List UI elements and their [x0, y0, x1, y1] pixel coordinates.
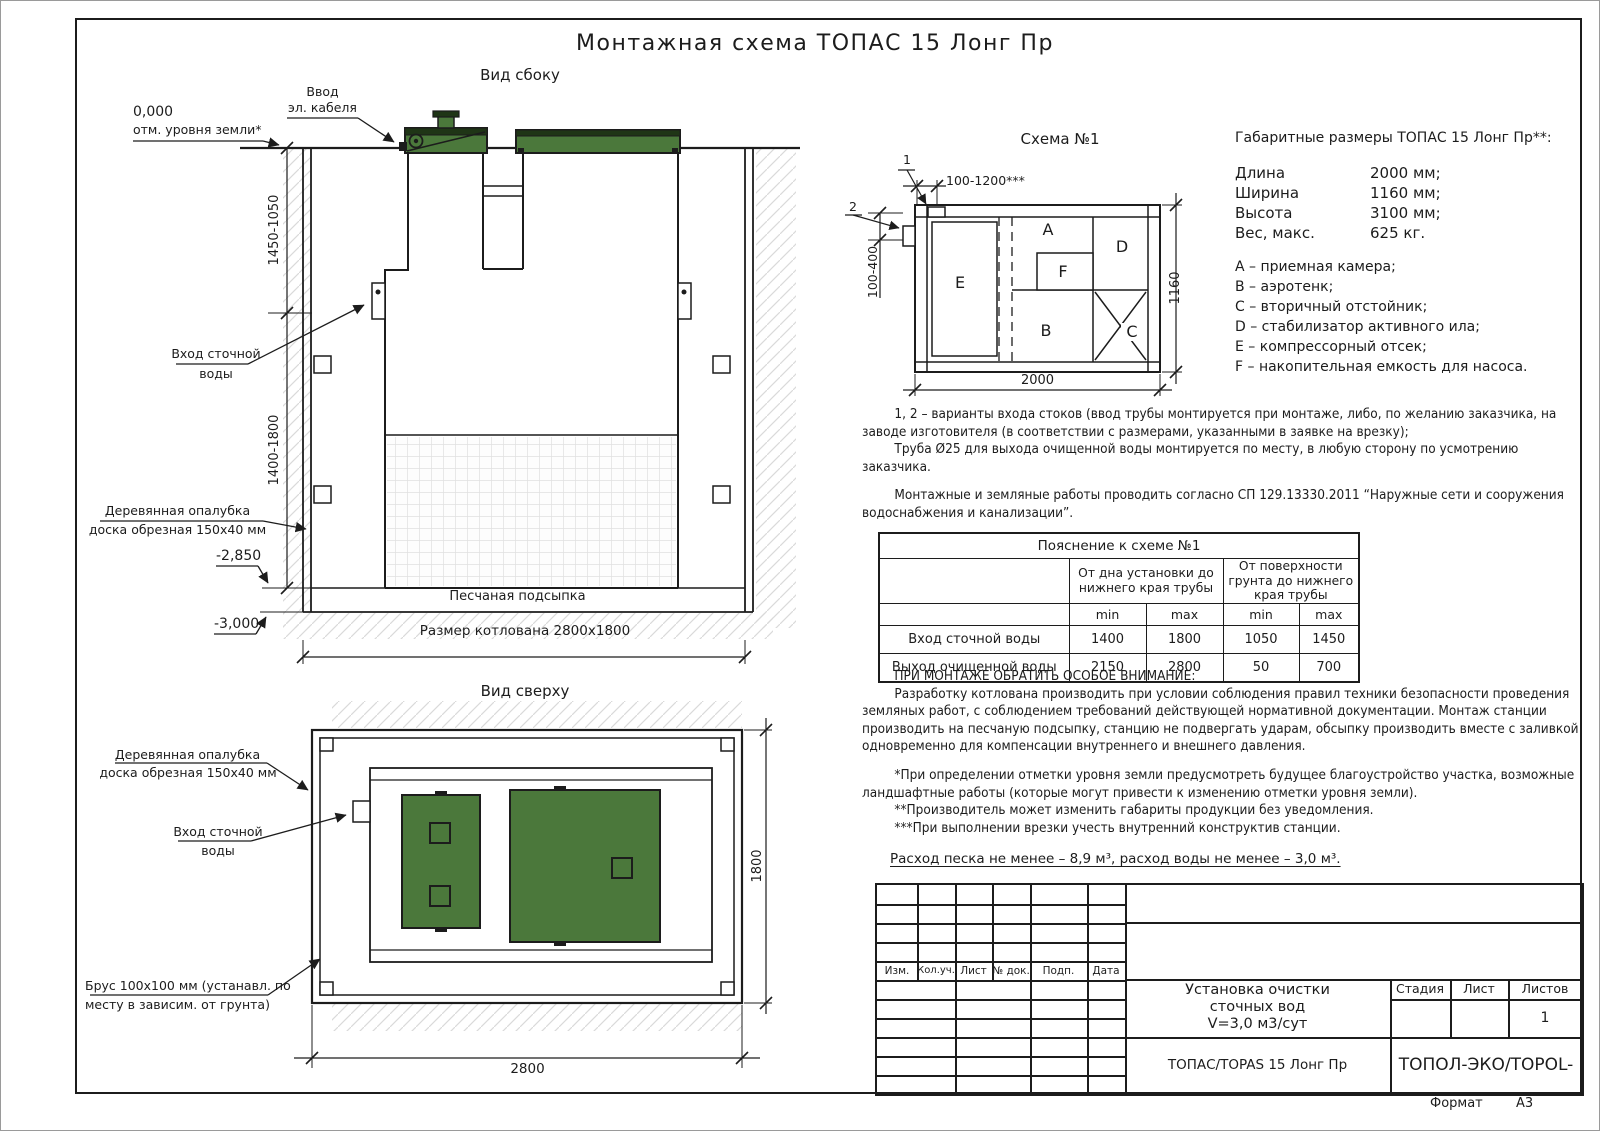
attention-heading: ПРИ МОНТАЖЕ ОБРАТИТЬ ОСОБОЕ ВНИМАНИЕ: [862, 668, 1582, 686]
company-name: ТОПОЛ-ЭКО/TOPOL-ECO [1390, 1037, 1582, 1094]
table-corner-cell [879, 559, 1069, 604]
pit-size-label: Размер котлована 2800х1800 [355, 623, 695, 639]
dim-pit-1800: 1800 [750, 821, 766, 911]
attention-block: ПРИ МОНТАЖЕ ОБРАТИТЬ ОСОБОЕ ВНИМАНИЕ: Ра… [862, 668, 1582, 837]
consumption-note: Расход песка не менее – 8,9 м³, расход в… [890, 851, 1341, 867]
rev-col-list: Лист [955, 962, 992, 980]
elevation-mark-3000: -3,000 [214, 616, 259, 632]
doc-title-line: сточных вод [1125, 999, 1390, 1016]
cable-entry-point [399, 142, 407, 151]
sand-bedding-label: Песчаная подсыпка [390, 589, 645, 604]
inlet-variant-2 [903, 226, 915, 246]
compartment-f: F [1052, 263, 1074, 281]
cable-entry-label: эл. кабеля [270, 100, 375, 115]
inlet-label: воды [166, 366, 266, 381]
inlet-label: Вход сточной [166, 346, 266, 361]
compartment-a: A [1037, 221, 1059, 239]
outlet-stub [678, 283, 691, 319]
beam-label: месту в зависим. от грунта) [85, 997, 265, 1012]
model-name: ТОПАС/TOPAS 15 Лонг Пр [1125, 1037, 1390, 1094]
dim-row-label: Высота [1235, 204, 1293, 222]
formwork-label: доска обрезная 150х40 мм [80, 522, 275, 537]
lid-small-plan [402, 791, 480, 932]
footnote-2: **Производитель может изменить габариты … [862, 802, 1582, 820]
note-inlet-variants: 1, 2 – варианты входа стоков (ввод трубы… [862, 406, 1582, 441]
tank-texture [387, 437, 676, 586]
dim-depth-upper: 1450-1050 [267, 175, 283, 285]
lid-small [399, 111, 487, 153]
schema-caption: Схема №1 [990, 130, 1130, 148]
table-row: Вход сточной воды 1400 1800 1050 1450 [879, 625, 1359, 653]
topview-hatch-top [332, 701, 742, 728]
dim-depth-lower: 1400-1800 [267, 395, 283, 505]
sheets-header: Листов [1508, 979, 1582, 999]
topview-hatch-bottom [332, 1004, 742, 1031]
inlet-plan-label: воды [168, 843, 268, 858]
rev-col-data: Дата [1087, 962, 1125, 980]
lid-large-plan [510, 786, 660, 946]
sheets-count: 1 [1508, 999, 1582, 1037]
cable-leader [358, 118, 394, 142]
dim-row-value: 1160 мм; [1370, 184, 1441, 202]
formwork-plan-label: Деревянная опалубка [100, 747, 275, 762]
drawing-sheet: Монтажная схема ТОПАС 15 Лонг Пр Вид сбо… [0, 0, 1600, 1131]
vent-cap [433, 111, 459, 117]
schema-dashed-walls [999, 217, 1012, 362]
rev-col-ndok: № док. [992, 962, 1030, 980]
rev-col-koluch: Кол.уч. [917, 962, 955, 980]
min-header: min [1223, 603, 1299, 625]
schema-dim-ticks [874, 180, 1182, 396]
notes-block: 1, 2 – варианты входа стоков (ввод трубы… [862, 406, 1582, 523]
brace [314, 356, 331, 373]
explanation-table: Пояснение к схеме №1 От дна установки до… [878, 532, 1360, 683]
cell-value: 1400 [1069, 625, 1146, 653]
inlet-point-1: 1 [903, 152, 911, 167]
doc-title-line: V=3,0 м3/сут [1125, 1016, 1390, 1033]
legend-item: F – накопительная емкость для насоса. [1235, 359, 1528, 375]
overall-dims-heading: Габаритные размеры ТОПАС 15 Лонг Пр**: [1235, 130, 1552, 146]
note-outlet-pipe: Труба Ø25 для выхода очищенной воды монт… [862, 441, 1582, 476]
row-label: Вход сточной воды [879, 625, 1069, 653]
legend-item: B – аэротенк; [1235, 279, 1333, 295]
legend-item: A – приемная камера; [1235, 259, 1396, 275]
title-block: Изм. Кол.уч. Лист № док. Подп. Дата Уста… [875, 883, 1584, 1096]
dim-row-label: Вес, макс. [1235, 224, 1315, 242]
inlet-variant-1 [928, 207, 945, 217]
dim-row-value: 2000 мм; [1370, 164, 1441, 182]
inlet-plan-label: Вход сточной [168, 824, 268, 839]
dim-row-label: Длина [1235, 164, 1285, 182]
table-group-header: От дна установки до нижнего края трубы [1069, 559, 1223, 604]
legend-item: D – стабилизатор активного ила; [1235, 319, 1480, 335]
cell-value: 1050 [1223, 625, 1299, 653]
table-group-header: От поверхности грунта до нижнего края тр… [1223, 559, 1359, 604]
compartment-c: C [1121, 323, 1143, 341]
inlet-stub [372, 283, 385, 319]
dim-row-label: Ширина [1235, 184, 1299, 202]
side-view-drawing [100, 111, 800, 664]
dim-inlet-offset: 100-1200*** [946, 173, 1025, 188]
dim-row-value: 625 кг. [1370, 224, 1425, 242]
cell-value: 1800 [1146, 625, 1223, 653]
doc-title: Установка очистки сточных вод V=3,0 м3/с… [1125, 982, 1390, 1037]
max-header: max [1299, 603, 1359, 625]
schema-drawing [845, 170, 1182, 396]
rev-col-izm: Изм. [877, 962, 917, 980]
elevation-mark-2850: -2,850 [216, 548, 261, 564]
zero-leader [263, 141, 279, 145]
beam-label: Брус 100х100 мм (устанавл. по [85, 978, 275, 993]
sheet-title: Монтажная схема ТОПАС 15 Лонг Пр [490, 31, 1140, 56]
rev-col-podp: Подп. [1030, 962, 1087, 980]
neck-bracket [483, 186, 523, 196]
dim-pit-2800: 2800 [490, 1061, 565, 1077]
dim-row-value: 3100 мм; [1370, 204, 1441, 222]
cable-entry-label: Ввод [285, 84, 360, 99]
dim-width-1160: 1160 [1168, 243, 1184, 333]
inlet-point-2: 2 [849, 199, 857, 214]
formwork-label: Деревянная опалубка [90, 503, 265, 518]
min-header: min [1069, 603, 1146, 625]
top-view-caption: Вид сверху [455, 682, 595, 700]
formwork-plan-label: доска обрезная 150х40 мм [88, 765, 288, 780]
mark2850-leader [258, 566, 268, 583]
legend-item: C – вторичный отстойник; [1235, 299, 1427, 315]
compartment-b: B [1035, 322, 1057, 340]
footnote-1: *При определении отметки уровня земли пр… [862, 767, 1582, 802]
brace [713, 486, 730, 503]
dim-inlet-depth: 100-400 [865, 227, 881, 317]
max-header: max [1146, 603, 1223, 625]
table-title: Пояснение к схеме №1 [879, 533, 1359, 559]
compartment-d: D [1111, 238, 1133, 256]
note-works: Монтажные и земляные работы проводить со… [862, 487, 1582, 522]
attention-body: Разработку котлована производить при усл… [862, 686, 1582, 756]
zero-mark: 0,000 [133, 104, 173, 120]
vent-stem [438, 116, 454, 128]
lid-large [516, 130, 680, 153]
format-label: Формат [1430, 1096, 1483, 1111]
brace [713, 356, 730, 373]
format-value: А3 [1516, 1096, 1533, 1111]
inlet-stub-plan [353, 801, 370, 822]
ground-level-label: отм. уровня земли* [133, 122, 261, 137]
doc-title-line: Установка очистки [1125, 982, 1390, 999]
legend-item: E – компрессорный отсек; [1235, 339, 1427, 355]
compartment-e: E [949, 274, 971, 292]
footnote-3: ***При выполнении врезки учесть внутренн… [862, 820, 1582, 838]
side-view-caption: Вид сбоку [450, 66, 590, 84]
dim-length-2000: 2000 [1000, 373, 1075, 389]
stage-header: Стадия [1390, 979, 1450, 999]
sheet-header: Лист [1450, 979, 1508, 999]
soil-hatch-right [756, 148, 796, 628]
cell-value: 1450 [1299, 625, 1359, 653]
brace [314, 486, 331, 503]
